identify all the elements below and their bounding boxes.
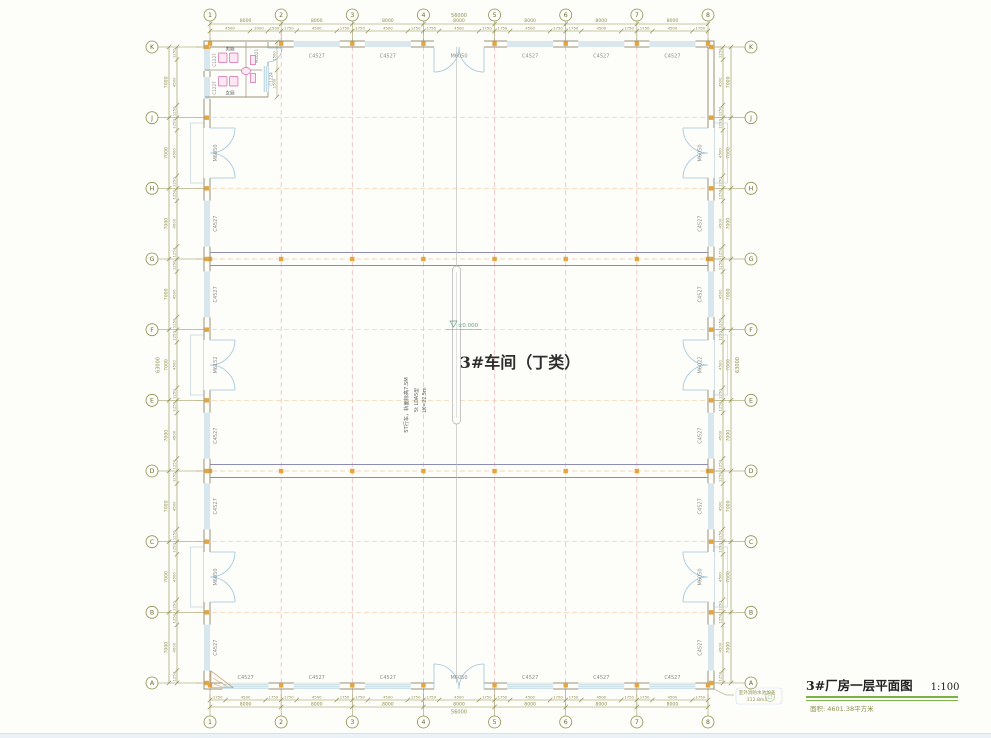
svg-text:1250: 1250 (171, 318, 176, 328)
grid-bubble-label: F (150, 327, 154, 334)
svg-text:1250: 1250 (717, 106, 722, 116)
door-label: M6022 (698, 356, 704, 373)
svg-text:1250: 1250 (171, 48, 176, 58)
svg-text:7000: 7000 (163, 359, 169, 371)
svg-text:1750: 1750 (213, 694, 223, 699)
svg-text:4500: 4500 (717, 360, 722, 370)
svg-text:7000: 7000 (725, 218, 731, 230)
grid-bubble-label: D (749, 468, 754, 475)
grid-bubble-label: 6 (564, 719, 568, 726)
svg-text:1750: 1750 (695, 25, 705, 30)
svg-text:1750: 1750 (355, 25, 365, 30)
svg-text:8000: 8000 (240, 701, 252, 707)
svg-text:8000: 8000 (667, 701, 679, 707)
svg-text:7000: 7000 (725, 571, 731, 583)
grid-bubble-label: 1 (208, 719, 212, 726)
svg-text:1250: 1250 (717, 260, 722, 270)
svg-text:4500: 4500 (241, 694, 251, 699)
grid-bubble-label: 8 (706, 12, 710, 19)
svg-text:7000: 7000 (163, 288, 169, 300)
fire-pool-note: 112.8m3 (747, 697, 768, 703)
svg-text:4500: 4500 (383, 694, 393, 699)
svg-text:1250: 1250 (717, 331, 722, 341)
svg-text:7000: 7000 (725, 147, 731, 159)
svg-text:1250: 1250 (717, 177, 722, 187)
title-underline-thin (806, 700, 958, 701)
sheet-bottom-edge (0, 733, 991, 738)
svg-text:1750: 1750 (569, 25, 579, 30)
svg-text:4500: 4500 (454, 694, 464, 699)
grid-bubble-label: E (749, 398, 753, 405)
svg-text:1750: 1750 (624, 25, 634, 30)
grid-bubble-label: B (749, 610, 753, 617)
restroom: C1227C1227M1021C1224男厕女厕15001500 (204, 40, 283, 99)
grid-bubble-label: H (150, 186, 155, 193)
svg-text:1750: 1750 (426, 25, 436, 30)
svg-text:7000: 7000 (163, 571, 169, 583)
dim-total-height: 63000 (156, 357, 162, 373)
svg-text:1250: 1250 (717, 459, 722, 469)
svg-text:1250: 1250 (171, 331, 176, 341)
window-label: C4527 (698, 498, 704, 514)
dim-bay-width: 8000 (311, 18, 323, 24)
room-name: 男厕 (226, 47, 235, 53)
svg-text:1750: 1750 (284, 694, 294, 699)
window-label: C4527 (522, 675, 538, 681)
svg-text:1250: 1250 (717, 671, 722, 681)
svg-text:4500: 4500 (717, 501, 722, 511)
svg-text:8000: 8000 (311, 701, 323, 707)
window-label: C4527 (213, 498, 219, 514)
grid-bubble-label: C (150, 539, 154, 546)
door-label: M6050 (450, 54, 467, 60)
svg-text:1750: 1750 (284, 25, 294, 30)
door-label: M6152 (213, 356, 219, 373)
svg-text:1750: 1750 (695, 694, 705, 699)
svg-text:1500: 1500 (272, 78, 277, 88)
svg-text:1250: 1250 (717, 389, 722, 399)
svg-text:4500: 4500 (717, 218, 722, 228)
grid-bubble-label: C (749, 539, 753, 546)
svg-text:4500: 4500 (717, 430, 722, 440)
dim-total-width: 56000 (451, 13, 467, 19)
svg-text:1750: 1750 (482, 25, 492, 30)
drawing-scale: 1:100 (931, 682, 960, 693)
door-label: M6050 (698, 568, 704, 585)
window-label: C4527 (380, 675, 396, 681)
svg-text:1750: 1750 (411, 694, 421, 699)
svg-text:1250: 1250 (171, 543, 176, 553)
svg-text:1250: 1250 (171, 389, 176, 399)
svg-text:7000: 7000 (725, 500, 731, 512)
svg-text:4500: 4500 (596, 25, 606, 30)
svg-text:2000: 2000 (254, 25, 264, 30)
svg-text:4500: 4500 (171, 430, 176, 440)
window-label: C4527 (213, 286, 219, 302)
svg-text:7000: 7000 (163, 218, 169, 230)
window-label: C4527 (698, 640, 704, 656)
svg-text:7000: 7000 (725, 359, 731, 371)
door-label: M6050 (213, 144, 219, 161)
svg-text:1250: 1250 (717, 48, 722, 58)
grid-bubble-label: 6 (564, 12, 568, 19)
crane-note: 5t LDA5型 (413, 388, 420, 412)
svg-text:4500: 4500 (312, 694, 322, 699)
grid-bubble-label: 4 (421, 12, 425, 19)
svg-text:1250: 1250 (717, 530, 722, 540)
svg-text:4500: 4500 (525, 25, 535, 30)
svg-text:1250: 1250 (717, 318, 722, 328)
crane-note: 5T行车，轨面标高7.5M (402, 377, 410, 433)
svg-text:4500: 4500 (525, 694, 535, 699)
drawing-title: 3#厂房一层平面图 (806, 675, 913, 694)
window-label: C4527 (698, 286, 704, 302)
svg-text:4500: 4500 (668, 25, 678, 30)
window-label: C4527 (593, 675, 609, 681)
grid-bubble-label: G (749, 256, 754, 263)
grid-bubble-label: 5 (493, 719, 497, 726)
svg-text:7000: 7000 (725, 288, 731, 300)
window-label: C4527 (213, 216, 219, 232)
svg-text:4500: 4500 (717, 148, 722, 158)
svg-text:4500: 4500 (171, 572, 176, 582)
grid-bubble-label: E (150, 398, 154, 405)
grid-bubble-label: 2 (279, 12, 283, 19)
dim-bay-width: 8000 (240, 18, 252, 24)
room-name: 女厕 (226, 90, 235, 97)
window-label: C1227 (212, 53, 217, 67)
svg-text:1750: 1750 (640, 25, 650, 30)
svg-text:7000: 7000 (163, 500, 169, 512)
door-label: M6050 (698, 144, 704, 161)
svg-text:4500: 4500 (312, 25, 322, 30)
window-label: C4527 (698, 216, 704, 232)
grid-bubble-label: 3 (350, 719, 354, 726)
svg-text:1750: 1750 (640, 694, 650, 699)
svg-text:1750: 1750 (497, 694, 507, 699)
svg-text:1750: 1750 (340, 25, 350, 30)
svg-text:1750: 1750 (497, 25, 507, 30)
grid-bubble-label: J (150, 115, 153, 122)
svg-text:1250: 1250 (171, 177, 176, 187)
svg-text:4500: 4500 (454, 25, 464, 30)
dim-bay-width: 8000 (382, 18, 394, 24)
svg-text:1750: 1750 (553, 694, 563, 699)
window-label: C4527 (593, 54, 609, 60)
svg-text:1250: 1250 (171, 401, 176, 411)
svg-text:1250: 1250 (171, 613, 176, 623)
grid-bubble-label: 7 (635, 12, 639, 19)
grid-bubble-label: B (150, 610, 154, 617)
svg-text:8000: 8000 (595, 701, 607, 707)
window-label: C4527 (664, 54, 680, 60)
svg-text:4500: 4500 (171, 289, 176, 299)
crane-note: LK=22.5m (422, 387, 428, 413)
svg-text:7000: 7000 (725, 430, 731, 442)
grid-bubble-label: 2 (279, 719, 283, 726)
door-label: M6050 (450, 675, 467, 681)
svg-text:4500: 4500 (171, 218, 176, 228)
window-label: C4527 (309, 675, 325, 681)
svg-text:1250: 1250 (717, 613, 722, 623)
grid-bubble-label: H (749, 186, 754, 193)
svg-text:1250: 1250 (171, 189, 176, 199)
svg-text:4500: 4500 (717, 572, 722, 582)
window-label: C4527 (380, 54, 396, 60)
svg-text:63000: 63000 (735, 357, 741, 373)
floor-plan-canvas: 8000450020001500800017504500175080001750… (0, 0, 991, 738)
svg-text:1250: 1250 (717, 119, 722, 129)
window-label: C4527 (522, 54, 538, 60)
grid-bubble-label: 5 (493, 12, 497, 19)
svg-text:4500: 4500 (668, 694, 678, 699)
svg-text:4500: 4500 (383, 25, 393, 30)
svg-text:8000: 8000 (453, 701, 465, 707)
svg-text:1250: 1250 (171, 106, 176, 116)
svg-text:1750: 1750 (624, 694, 634, 699)
grid-bubble-label: D (150, 468, 155, 475)
svg-text:7000: 7000 (725, 76, 731, 88)
grid-bubble-label: 8 (706, 719, 710, 726)
svg-text:4500: 4500 (225, 25, 235, 30)
drawing-sheet: 8000450020001500800017504500175080001750… (0, 0, 991, 738)
svg-text:4500: 4500 (171, 77, 176, 87)
svg-text:4500: 4500 (717, 289, 722, 299)
dimension-chains: 8000450020001500800017504500175080001750… (156, 13, 742, 716)
annotations: 3#车间（丁类）±0.0005T行车，轨面标高7.5M5t LDA5型LK=22… (211, 321, 782, 704)
svg-text:1250: 1250 (171, 671, 176, 681)
grid-bubble-label: J (749, 115, 752, 122)
grid-bubble-label: 7 (635, 719, 639, 726)
svg-text:4500: 4500 (596, 694, 606, 699)
dim-bay-width: 8000 (524, 18, 536, 24)
svg-text:1750: 1750 (553, 25, 563, 30)
svg-text:7000: 7000 (163, 147, 169, 159)
window-label: C4527 (213, 428, 219, 444)
svg-text:1250: 1250 (171, 459, 176, 469)
svg-text:1250: 1250 (717, 189, 722, 199)
svg-text:1750: 1750 (355, 694, 365, 699)
svg-text:1750: 1750 (569, 694, 579, 699)
svg-text:7000: 7000 (163, 430, 169, 442)
grid-bubble-label: 1 (208, 12, 212, 19)
svg-text:1250: 1250 (171, 472, 176, 482)
svg-text:1500: 1500 (270, 25, 280, 30)
svg-text:4500: 4500 (171, 360, 176, 370)
title-block: 3#厂房一层平面图 1:100 面积: 4601.38平方米 (806, 675, 976, 713)
svg-text:4500: 4500 (717, 642, 722, 652)
svg-text:1750: 1750 (482, 694, 492, 699)
svg-text:1250: 1250 (717, 247, 722, 257)
svg-text:7000: 7000 (163, 642, 169, 654)
elevation-marker: ±0.000 (458, 323, 479, 329)
svg-text:1250: 1250 (171, 119, 176, 129)
svg-text:1250: 1250 (717, 401, 722, 411)
svg-text:8000: 8000 (524, 701, 536, 707)
svg-text:4500: 4500 (171, 148, 176, 158)
window-label: C1227 (212, 81, 217, 95)
svg-text:1750: 1750 (340, 694, 350, 699)
door-label: M6050 (213, 568, 219, 585)
svg-text:4500: 4500 (717, 77, 722, 87)
svg-text:1500: 1500 (272, 51, 277, 61)
svg-text:1750: 1750 (411, 25, 421, 30)
svg-text:1250: 1250 (171, 260, 176, 270)
window-label: C4527 (309, 54, 325, 60)
svg-text:1750: 1750 (426, 694, 436, 699)
svg-text:1250: 1250 (171, 530, 176, 540)
svg-text:1250: 1250 (717, 601, 722, 611)
window-label: C4527 (698, 428, 704, 444)
window-label: C4527 (213, 640, 219, 656)
room-label: 3#车间（丁类） (460, 353, 581, 372)
svg-text:8000: 8000 (382, 701, 394, 707)
svg-text:1250: 1250 (717, 543, 722, 553)
svg-text:56000: 56000 (451, 710, 467, 716)
dim-bay-width: 8000 (595, 18, 607, 24)
dim-bay-width: 8000 (667, 18, 679, 24)
svg-text:7000: 7000 (725, 642, 731, 654)
grid-bubble-label: G (150, 256, 155, 263)
grid-bubble-label: 4 (421, 719, 425, 726)
window-label: C4527 (237, 675, 253, 681)
grid-bubble-label: F (749, 327, 753, 334)
svg-text:1750: 1750 (269, 694, 279, 699)
grid-bubble-label: 3 (350, 12, 354, 19)
title-underline-thick (806, 696, 958, 698)
svg-text:1250: 1250 (171, 247, 176, 257)
drawing-area-note: 面积: 4601.38平方米 (810, 703, 976, 713)
svg-text:1250: 1250 (717, 472, 722, 482)
svg-text:4500: 4500 (171, 501, 176, 511)
svg-text:7000: 7000 (163, 76, 169, 88)
grid-bubbles: 1122334455667788KKJJHHGGFFEEDDCCBBAA (146, 9, 757, 728)
svg-text:4500: 4500 (171, 642, 176, 652)
svg-text:1250: 1250 (171, 601, 176, 611)
window-label: C4527 (664, 675, 680, 681)
